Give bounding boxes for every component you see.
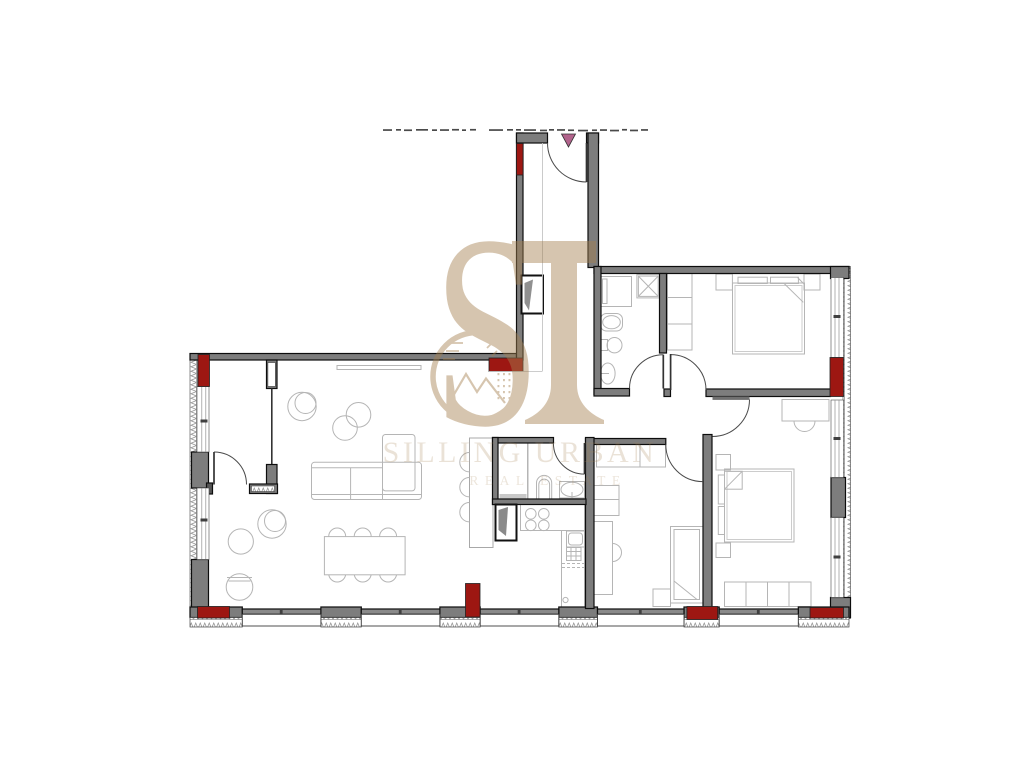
- svg-text:SILLING URBAN: SILLING URBAN: [383, 436, 658, 469]
- svg-text:REAL ESTATE: REAL ESTATE: [469, 473, 626, 488]
